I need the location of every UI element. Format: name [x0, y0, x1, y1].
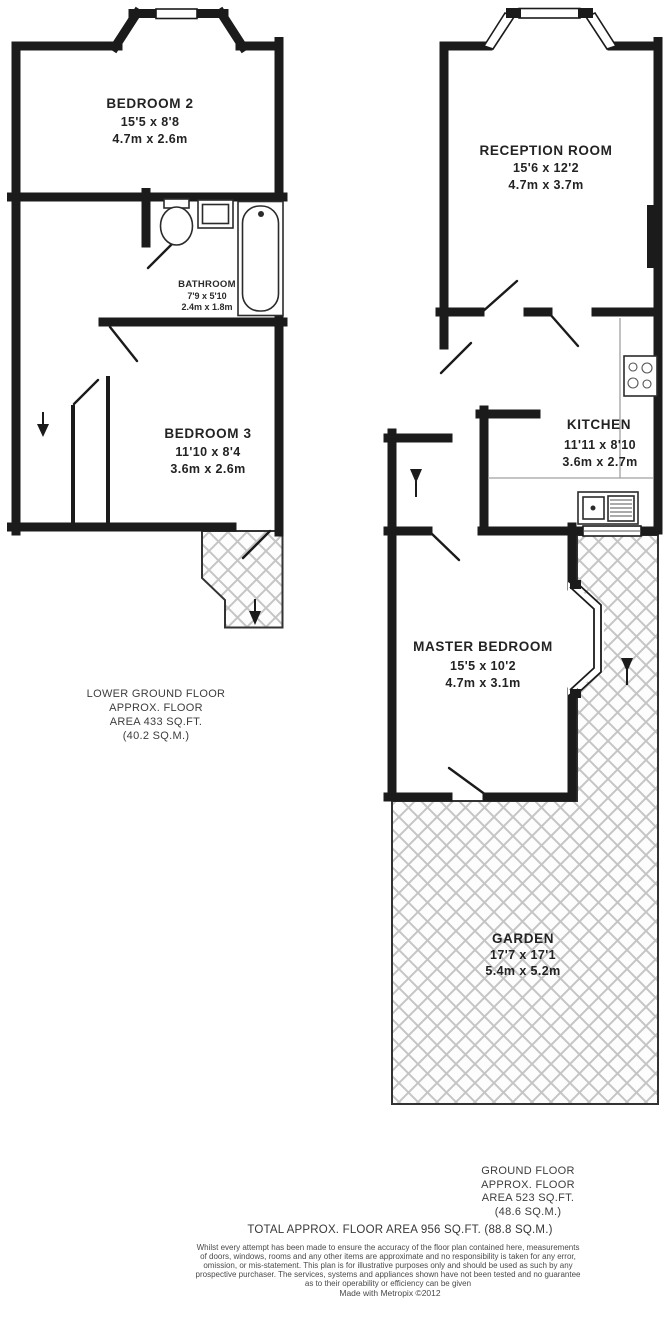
- garden-door-leaf: [449, 768, 486, 795]
- lower-caption-line2: APPROX. FLOOR: [109, 702, 203, 714]
- bathtub-icon: [238, 202, 283, 316]
- sink-icon: [198, 200, 233, 228]
- kitchen-imperial-label: 11'11 x 8'10: [564, 438, 636, 452]
- bedroom2-bay-window: [156, 9, 197, 19]
- floorplan-svg: BEDROOM 2 15'5 x 8'8 4.7m x 2.6m BATHROO…: [0, 0, 670, 1318]
- disclaimer-text: Whilst every attempt has been made to en…: [196, 1243, 582, 1298]
- garden-area: [392, 535, 658, 1104]
- reception-metric-label: 4.7m x 3.7m: [508, 178, 583, 192]
- metropix-credit: Made with Metropix ©2012: [339, 1288, 441, 1298]
- ground-caption-line1: GROUND FLOOR: [481, 1165, 574, 1177]
- reception-imperial-label: 15'6 x 12'2: [513, 161, 579, 175]
- lower-caption-line4: (40.2 SQ.M.): [123, 730, 190, 742]
- garden-name-label: GARDEN: [492, 931, 554, 946]
- kitchen-window: [583, 526, 641, 536]
- stairs-down-arrow-icon: [37, 412, 49, 437]
- stairs-door-leaf: [74, 380, 98, 404]
- ground-floor-plan: RECEPTION ROOM 15'6 x 12'2 4.7m x 3.7m K…: [388, 8, 662, 1218]
- kitchen-door-leaf: [549, 313, 578, 346]
- master-imperial-label: 15'5 x 10'2: [450, 659, 516, 673]
- bathroom-imperial-label: 7'9 x 5'10: [187, 291, 226, 301]
- total-area-text: TOTAL APPROX. FLOOR AREA 956 SQ.FT. (88.…: [247, 1224, 552, 1236]
- master-name-label: MASTER BEDROOM: [413, 639, 553, 654]
- entrance-up-arrow-icon: [410, 469, 422, 497]
- disclaimer-line3: omission, or mis-statement. This plan is…: [203, 1261, 572, 1270]
- ground-caption-line2: APPROX. FLOOR: [481, 1179, 575, 1191]
- floorplan-page: BEDROOM 2 15'5 x 8'8 4.7m x 2.6m BATHROO…: [0, 0, 670, 1318]
- garden-imperial-label: 17'7 x 17'1: [490, 948, 556, 962]
- hob-icon: [624, 356, 657, 396]
- disclaimer-line2: of doors, windows, rooms and any other i…: [200, 1252, 576, 1261]
- bedroom3-metric-label: 3.6m x 2.6m: [170, 462, 245, 476]
- bedroom3-imperial-label: 11'10 x 8'4: [175, 445, 240, 459]
- ground-floor-caption: GROUND FLOOR APPROX. FLOOR AREA 523 SQ.F…: [481, 1165, 575, 1218]
- disclaimer-line1: Whilst every attempt has been made to en…: [197, 1243, 580, 1252]
- chimney-breast: [647, 205, 662, 268]
- bedroom3-name-label: BEDROOM 3: [164, 426, 251, 441]
- disclaimer-line4: prospective purchaser. The services, sys…: [196, 1270, 582, 1279]
- bathroom-metric-label: 2.4m x 1.8m: [181, 302, 232, 312]
- ground-caption-line4: (48.6 SQ.M.): [495, 1206, 562, 1218]
- disclaimer-line5: as to their operability or efficiency ca…: [305, 1279, 471, 1288]
- bedroom3-door-leaf: [110, 327, 137, 361]
- master-door-leaf: [431, 533, 459, 560]
- reception-door-leaf: [481, 281, 517, 313]
- toilet-icon: [161, 199, 193, 245]
- bedroom2-imperial-label: 15'5 x 8'8: [121, 115, 180, 129]
- lower-caption-line1: LOWER GROUND FLOOR: [87, 688, 226, 700]
- bedroom2-metric-label: 4.7m x 2.6m: [112, 132, 187, 146]
- kitchen-metric-label: 3.6m x 2.7m: [562, 455, 637, 469]
- ground-caption-line3: AREA 523 SQ.FT.: [482, 1192, 575, 1204]
- lower-caption-line3: AREA 433 SQ.FT.: [110, 716, 203, 728]
- reception-bay-window: [484, 8, 616, 49]
- kitchen-name-label: KITCHEN: [567, 417, 631, 432]
- lower-ground-floor-plan: BEDROOM 2 15'5 x 8'8 4.7m x 2.6m BATHROO…: [12, 9, 284, 742]
- bathroom-door-leaf: [148, 241, 175, 268]
- ground-doors: [431, 281, 578, 795]
- garden-metric-label: 5.4m x 5.2m: [485, 964, 560, 978]
- bedroom2-name-label: BEDROOM 2: [106, 96, 193, 111]
- bathroom-name-label: BATHROOM: [178, 279, 236, 290]
- master-metric-label: 4.7m x 3.1m: [445, 676, 520, 690]
- reception-name-label: RECEPTION ROOM: [480, 143, 613, 158]
- lower-floor-caption: LOWER GROUND FLOOR APPROX. FLOOR AREA 43…: [87, 688, 226, 742]
- kitchen-sink-icon: [578, 492, 638, 524]
- patio-area: [202, 531, 283, 628]
